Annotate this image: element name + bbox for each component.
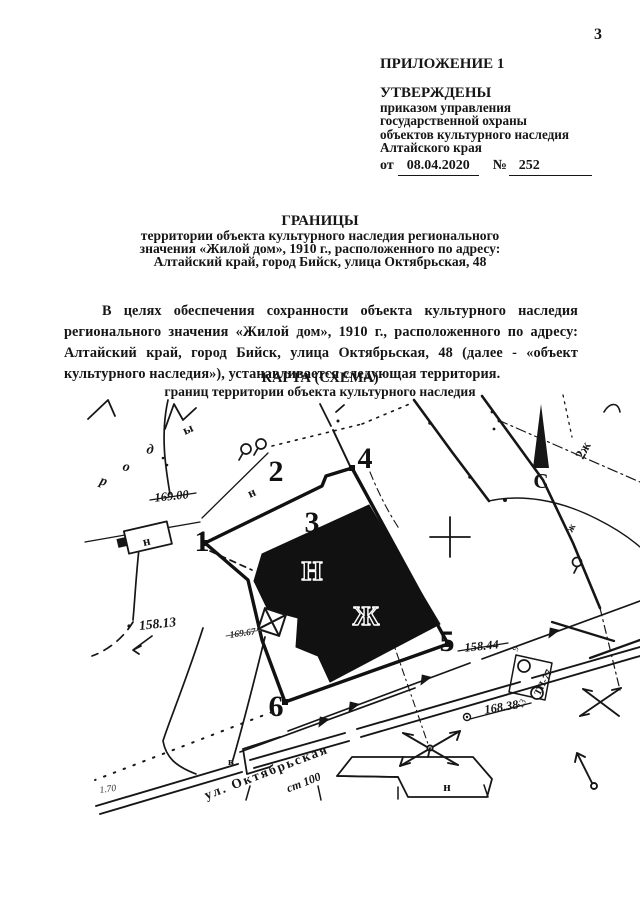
building-letter-Zh: Ж — [353, 601, 380, 631]
letter-r: р — [97, 473, 109, 490]
north-label: С — [533, 469, 548, 493]
boundary-point-1: 1 — [195, 525, 210, 558]
elevation-158-44: 158.44 — [464, 637, 500, 655]
outbuilding-upper-left: н — [115, 521, 172, 555]
north-arrow-icon: С — [533, 404, 549, 493]
label-zh: ж — [564, 522, 578, 535]
boundary-point-6: 6 — [269, 690, 284, 723]
elevation-169-67: 169.67 — [229, 627, 258, 641]
letter-v: в — [228, 756, 234, 768]
road-contour-lines — [92, 400, 265, 774]
dimension-1-70: 1.70 — [99, 784, 117, 796]
letter-n-fence: н — [245, 484, 259, 501]
label-2zh: 2ж — [573, 439, 595, 462]
grid-cross — [430, 517, 470, 557]
street-st100-label: ст 100 — [284, 769, 322, 795]
boundary-point-5: 5 — [440, 625, 455, 658]
boundary-point-4: 4 — [358, 442, 373, 475]
letter-d: д — [145, 442, 154, 458]
tp77-label: ТП-77 — [532, 668, 555, 698]
elevation-158-13: 158.13 — [138, 614, 177, 633]
outbuilding-bottom: н — [337, 748, 492, 797]
letter-o: о — [121, 459, 131, 475]
letter-y: ы — [180, 420, 196, 438]
building-letter-n: н — [443, 779, 451, 794]
document-page: { "page": { "number": "3" }, "header": {… — [0, 0, 640, 905]
elevation-169-00: 169.00 — [154, 487, 190, 505]
building-letter-N: Н — [301, 556, 322, 586]
boundary-map-schema: н С 1 2 3 4 5 6 Н Ж — [0, 0, 640, 905]
boundary-point-2: 2 — [269, 455, 284, 488]
